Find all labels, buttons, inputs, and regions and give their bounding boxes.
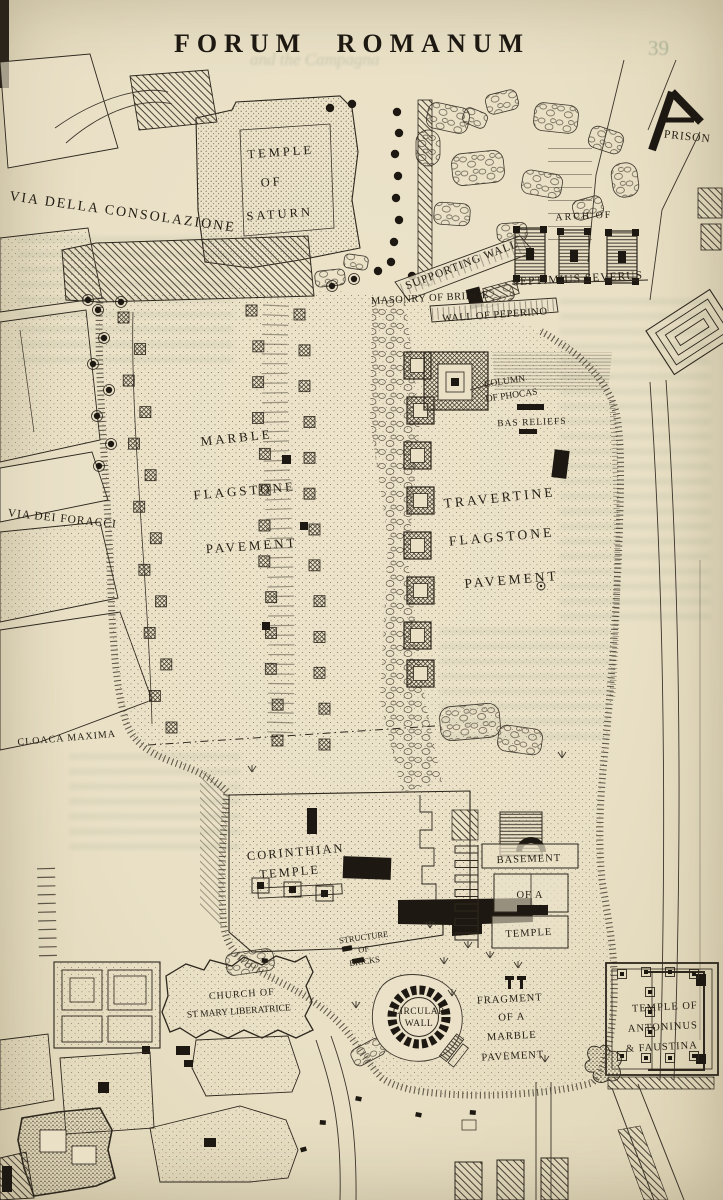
label-temple-of-antoninus-3: & FAUSTINA — [626, 1040, 698, 1055]
city-blocks-top-left — [0, 54, 217, 168]
column-dot — [326, 104, 334, 112]
column-dot — [395, 216, 403, 224]
fleck — [320, 1120, 326, 1125]
label-circular-wall: WALL — [405, 1019, 433, 1029]
column-base — [259, 520, 270, 531]
wall-strip — [418, 100, 432, 285]
column-dot — [692, 972, 696, 976]
column-base — [144, 627, 155, 638]
fleck — [355, 1096, 362, 1102]
pier-capital — [584, 228, 591, 235]
column-dot — [257, 882, 264, 889]
fleck — [470, 1110, 476, 1115]
pier-core — [618, 251, 626, 263]
column-dot — [644, 970, 648, 974]
column-base — [150, 533, 161, 544]
label-temple-of-antoninus-1: TEMPLE OF — [632, 1000, 698, 1014]
fleck — [261, 958, 268, 963]
forum-romanum-map: FORUM ROMANUM TEMPLE OF SATURN PRISON VI… — [0, 0, 723, 1200]
column-base — [253, 413, 264, 424]
label-temple-of-antoninus-2: ANTONINUS — [628, 1020, 699, 1035]
pier-capital — [605, 229, 612, 236]
rubble-patch — [433, 202, 470, 226]
stump — [118, 299, 124, 305]
column-dot — [692, 1054, 696, 1058]
plinth-core — [414, 584, 428, 598]
column-dot — [348, 100, 356, 108]
column-base — [166, 722, 177, 733]
column-base — [314, 596, 325, 607]
column-base — [299, 345, 310, 356]
column-dot — [390, 238, 398, 246]
column-dot — [620, 972, 624, 976]
pier-capital — [632, 229, 639, 236]
label-structure-of-bricks-2: OF — [358, 943, 370, 954]
column-base — [118, 312, 129, 323]
column-base — [304, 417, 315, 428]
column-dot — [392, 194, 400, 202]
column-dot — [668, 970, 672, 974]
rubble-patch — [343, 253, 369, 270]
rubble-patch — [484, 88, 520, 115]
label-fragment-of-a: OF A — [498, 1011, 526, 1023]
column-dot — [644, 1056, 648, 1060]
column-dot — [374, 267, 382, 275]
stump — [108, 441, 114, 447]
column-dot — [394, 172, 402, 180]
column-base — [319, 739, 330, 750]
church-st-mary-liberatrice — [162, 956, 313, 1096]
label-circular: CIRCULAR — [393, 1007, 445, 1017]
label-basement-of-a: OF A — [516, 890, 543, 901]
column-dot — [668, 1056, 672, 1060]
column-base — [265, 663, 276, 674]
column-base — [299, 381, 310, 392]
stump — [94, 413, 100, 419]
pier-capital — [540, 226, 547, 233]
column-dot — [393, 108, 401, 116]
column-base — [314, 632, 325, 643]
column-dot — [387, 258, 395, 266]
rubble-patch — [450, 149, 505, 186]
stump — [329, 283, 335, 289]
plinth-core — [414, 494, 428, 508]
rubble-patch — [520, 169, 564, 200]
stump — [96, 463, 102, 469]
column-base — [259, 556, 270, 567]
column-base — [304, 452, 315, 463]
stump — [90, 361, 96, 367]
staircase — [46, 868, 48, 958]
column-base — [134, 501, 145, 512]
pier-capital — [513, 226, 520, 233]
buildings-east-edge — [646, 188, 723, 1080]
stump — [85, 297, 91, 303]
pier-core — [570, 250, 578, 262]
plinth-core — [411, 539, 425, 553]
rubble-patch — [533, 102, 580, 134]
map-title: FORUM ROMANUM — [174, 29, 530, 58]
streets-south — [455, 1082, 684, 1200]
column-base — [149, 690, 160, 701]
label-temple-of-saturn-2: OF — [260, 174, 283, 189]
column-base — [123, 375, 134, 386]
column-dot — [391, 150, 399, 158]
label-basement: BASEMENT — [496, 853, 561, 866]
column-base — [128, 438, 139, 449]
column-base — [304, 488, 315, 499]
column-base — [139, 564, 150, 575]
stump — [351, 276, 357, 282]
plinth-core — [411, 449, 425, 463]
column-base — [140, 407, 151, 418]
column-base — [135, 344, 146, 355]
column-base — [161, 659, 172, 670]
label-prison: PRISON — [663, 129, 711, 146]
column-base — [309, 524, 320, 535]
rubble-patch — [610, 161, 640, 198]
pier-core — [526, 248, 534, 260]
column-base — [309, 560, 320, 571]
column-base — [319, 703, 330, 714]
column-dot — [321, 890, 328, 897]
plinth-core — [414, 667, 428, 681]
column-dot — [289, 886, 296, 893]
dark-building — [18, 1108, 115, 1196]
scanned-map-page: and the Campagna 39 — [0, 0, 723, 1200]
column-base — [156, 596, 167, 607]
column-dot — [395, 129, 403, 137]
column-base — [145, 470, 156, 481]
label-arch-of: ARCH OF — [555, 210, 613, 224]
column-dot — [648, 990, 652, 994]
stump — [101, 335, 107, 341]
plinth-core — [411, 359, 425, 373]
column-base — [272, 699, 283, 710]
fleck — [300, 1146, 307, 1152]
column-base — [259, 448, 270, 459]
fleck — [415, 1112, 422, 1118]
column-base — [246, 305, 257, 316]
pier-capital — [557, 228, 564, 235]
column-base — [294, 309, 305, 320]
column-base — [314, 667, 325, 678]
nested-building — [646, 289, 723, 374]
stump — [106, 387, 112, 393]
plinth-core — [411, 629, 425, 643]
stump — [95, 307, 101, 313]
column-base — [253, 341, 264, 352]
column-base — [266, 592, 277, 603]
column-base — [253, 377, 264, 388]
rubble-patch — [586, 124, 625, 155]
